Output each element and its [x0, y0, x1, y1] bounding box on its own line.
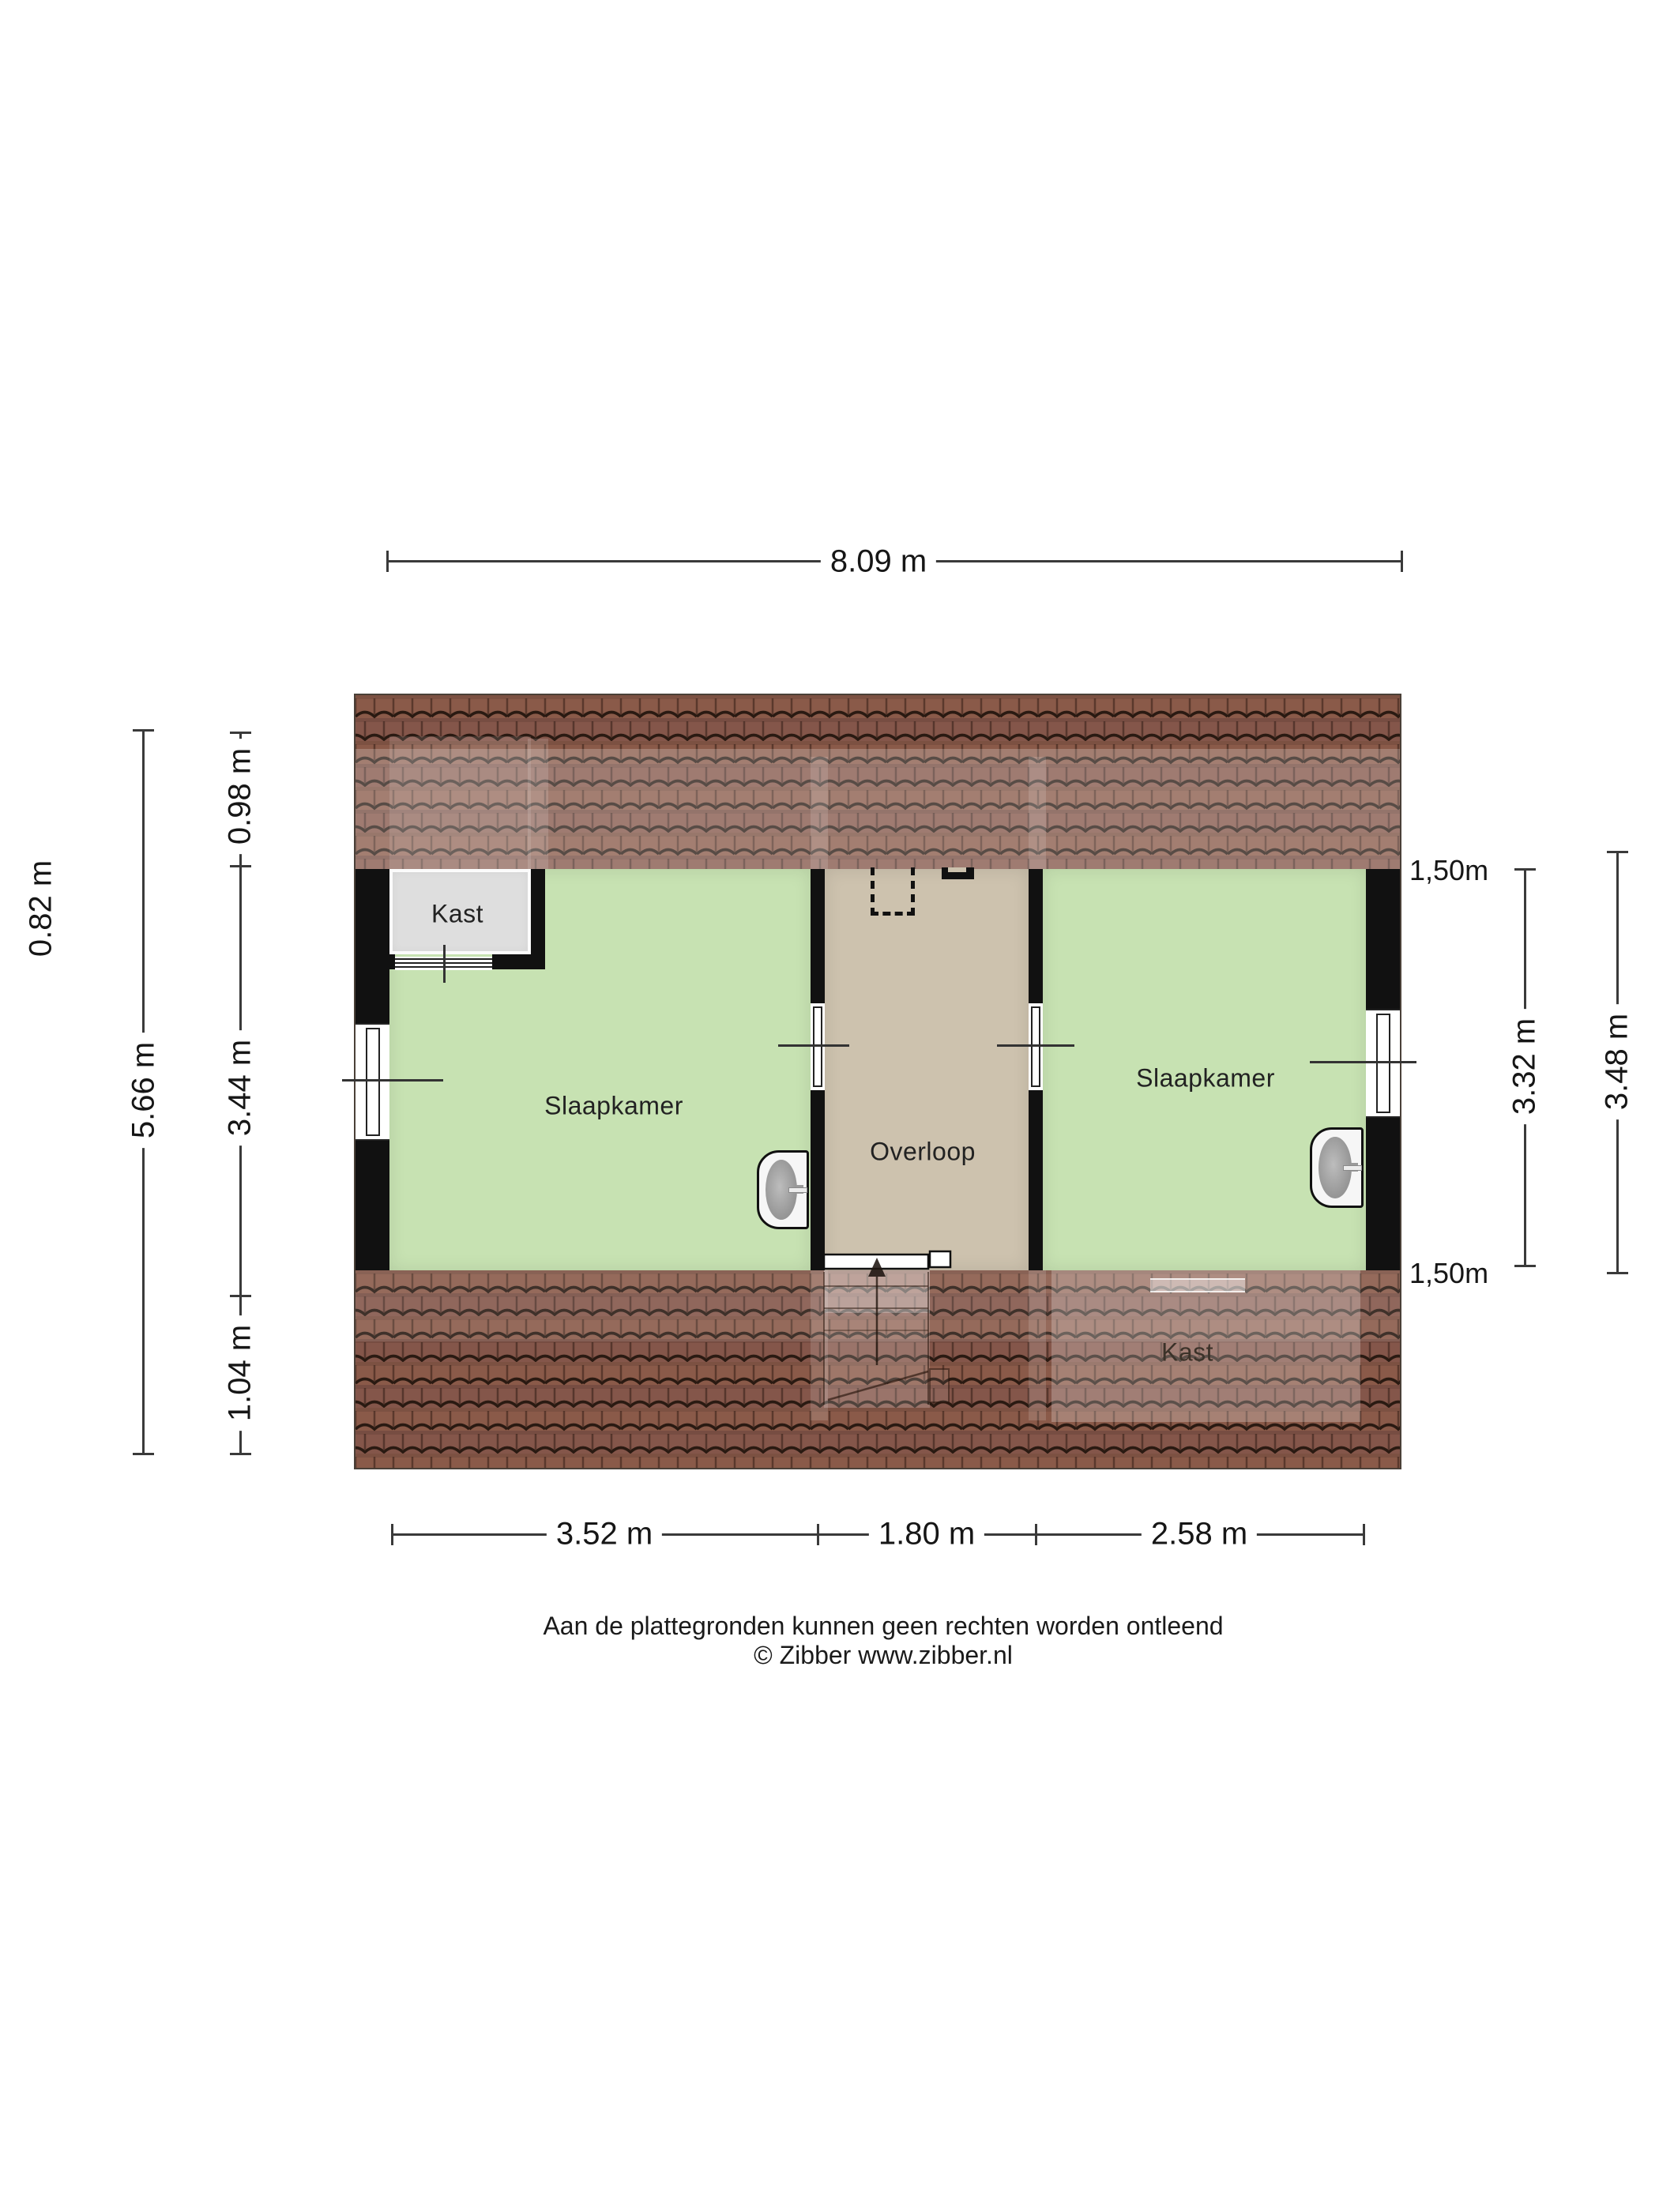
- tick: [1514, 868, 1536, 871]
- staircase: [822, 1248, 956, 1410]
- footer-disclaimer: Aan de plattegronden kunnen geen rechten…: [543, 1612, 1223, 1641]
- tick: [386, 551, 389, 572]
- knee-wall-bottom-label: 1,50m: [1409, 1257, 1488, 1290]
- tick: [230, 865, 251, 867]
- door-overloop-left: [811, 1003, 825, 1090]
- room-label-slaapkamer-left: Slaapkamer: [544, 1092, 683, 1121]
- roof-wall-seam: [528, 739, 548, 869]
- washbasin-icon: [1310, 1127, 1364, 1208]
- chimney-notch: [948, 867, 966, 872]
- tick: [230, 732, 251, 734]
- floorplan-page: 8.09 m 0.82 m 5.66 m 0.98 m 3.44 m 1.04 …: [0, 0, 1659, 2212]
- window-center-tick: [342, 1079, 443, 1082]
- wall-kast-bottom: [389, 954, 395, 969]
- window-frame: [366, 1028, 380, 1136]
- dim-bottom-seg1-label: 3.52 m: [547, 1515, 662, 1554]
- tick: [1607, 851, 1628, 853]
- window-right: [1366, 1009, 1400, 1118]
- tick: [230, 1453, 251, 1455]
- faucet: [788, 1187, 807, 1193]
- door-overloop-right: [1029, 1003, 1043, 1090]
- tick: [133, 1453, 154, 1455]
- dim-bottom-seg3-label: 2.58 m: [1142, 1515, 1257, 1554]
- room-label-kast-top: Kast: [431, 900, 483, 929]
- room-overloop: [825, 869, 1029, 1270]
- door-leaf: [1031, 1006, 1040, 1087]
- dim-right-room-label: 3.32 m: [1506, 1009, 1544, 1124]
- door-leaf: [813, 1006, 822, 1087]
- roof-wall-seam: [1029, 1270, 1046, 1420]
- roof-window: [1150, 1278, 1245, 1292]
- dim-left-seg2-label: 3.44 m: [221, 1030, 260, 1145]
- dim-top-label: 8.09 m: [821, 543, 936, 581]
- tick: [1401, 551, 1403, 572]
- tick: [1035, 1524, 1037, 1545]
- tick: [1514, 1265, 1536, 1267]
- room-label-overloop: Overloop: [870, 1138, 976, 1167]
- room-label-kast-bottom: Kast: [1161, 1338, 1213, 1367]
- roof-wall-seam: [811, 757, 828, 869]
- room-label-slaapkamer-right: Slaapkamer: [1136, 1064, 1275, 1093]
- window-frame: [1376, 1014, 1390, 1113]
- footer-copyright: © Zibber www.zibber.nl: [754, 1641, 1013, 1670]
- faucet: [1343, 1165, 1362, 1171]
- dim-left-seg1-label: 0.98 m: [221, 739, 260, 854]
- skylight-dashed: [871, 867, 915, 916]
- dim-left-outer-label: 0.82 m: [22, 851, 61, 966]
- roof-wall-seam: [1029, 757, 1046, 869]
- window-center-tick: [1310, 1061, 1416, 1063]
- dim-left-seg3-label: 1.04 m: [221, 1315, 260, 1431]
- wall-kast-bottom: [492, 954, 545, 969]
- dim-left-total-label: 5.66 m: [125, 1033, 164, 1148]
- window-left: [355, 1023, 389, 1141]
- door-center-tick: [778, 1044, 849, 1047]
- door-center-tick: [443, 945, 446, 983]
- roof-haze: [389, 736, 531, 869]
- dim-bottom-seg2-label: 1.80 m: [869, 1515, 984, 1554]
- washbasin-icon: [757, 1150, 809, 1229]
- door-center-tick: [997, 1044, 1074, 1047]
- tick: [133, 729, 154, 732]
- tick: [391, 1524, 393, 1545]
- tick: [230, 1295, 251, 1297]
- tick: [1607, 1272, 1628, 1274]
- dim-right-total-label: 3.48 m: [1598, 1004, 1637, 1119]
- floorplan-drawing: Kast Slaapkamer Overloop Slaapkamer Kast: [355, 695, 1400, 1468]
- knee-wall-top-label: 1,50m: [1409, 854, 1488, 887]
- tick: [817, 1524, 819, 1545]
- tick: [1363, 1524, 1365, 1545]
